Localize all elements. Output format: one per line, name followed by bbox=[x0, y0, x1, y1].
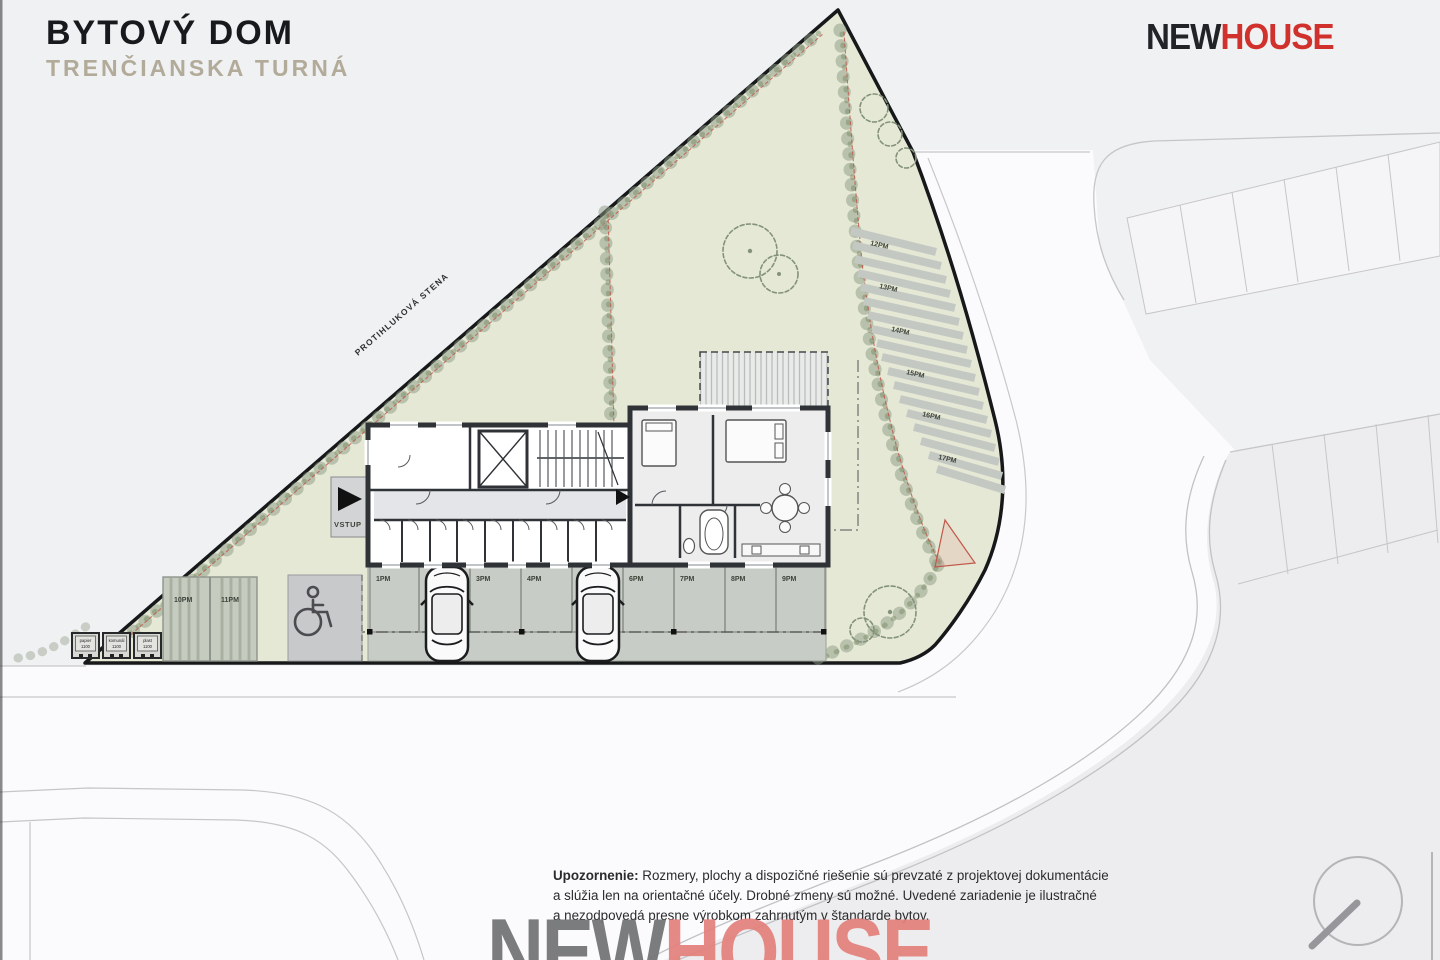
bin-label: komunál bbox=[109, 638, 125, 643]
bin-label: papier bbox=[80, 638, 92, 643]
disclaimer-label: Upozornenie: bbox=[553, 868, 639, 883]
parking-label: 8PM bbox=[731, 576, 746, 583]
parking-label: 10PM bbox=[174, 597, 192, 604]
parking-label: 1PM bbox=[376, 576, 391, 583]
parking-label: 9PM bbox=[782, 576, 797, 583]
parking-row: 1PM 2PM 3PM 4PM 5PM 6PM 7PM 8PM 9PM bbox=[330, 565, 827, 661]
watermark-logo-house: HOUSE bbox=[664, 899, 932, 960]
terrace bbox=[700, 352, 828, 408]
watermark-logo: NEWHOUSE bbox=[487, 898, 932, 960]
disclaimer-line1: Rozmery, plochy a dispozičné riešenie sú… bbox=[639, 868, 1109, 883]
bin-size: 1100 bbox=[81, 644, 91, 649]
page-subtitle: TRENČIANSKA TURNÁ bbox=[46, 56, 350, 80]
parking-label: 7PM bbox=[680, 576, 695, 583]
handicap-parking bbox=[288, 575, 362, 661]
parking-label: 4PM bbox=[527, 576, 542, 583]
brand-logo-house: HOUSE bbox=[1221, 16, 1334, 57]
parking-left-stalls: 10PM 11PM bbox=[163, 577, 257, 661]
entrance-label: VSTUP bbox=[334, 520, 362, 529]
bin-size: 1100 bbox=[143, 644, 153, 649]
building-entrance: VSTUP bbox=[331, 477, 370, 537]
brand-logo: NEWHOUSE bbox=[1146, 16, 1334, 58]
title-block: BYTOVÝ DOM TRENČIANSKA TURNÁ bbox=[46, 16, 350, 80]
bin-size: 1100 bbox=[112, 644, 122, 649]
parking-label: 11PM bbox=[221, 597, 239, 604]
car-icon bbox=[572, 567, 624, 661]
watermark-logo-new: NEW bbox=[487, 899, 664, 960]
page-title: BYTOVÝ DOM bbox=[46, 16, 350, 52]
parking-label: 3PM bbox=[476, 576, 491, 583]
parking-label: 6PM bbox=[629, 576, 644, 583]
site-plan-page: 12PM 13PM 14PM 15PM 16PM 17PM PROTIHLUKO… bbox=[0, 0, 1440, 960]
bin-label: plast bbox=[143, 638, 153, 643]
car-icon bbox=[421, 567, 473, 661]
site-plan-svg: 12PM 13PM 14PM 15PM 16PM 17PM PROTIHLUKO… bbox=[0, 0, 1440, 960]
waste-bins: papier 1100 komunál 1100 plast 1100 bbox=[72, 633, 161, 658]
brand-logo-new: NEW bbox=[1146, 16, 1221, 57]
